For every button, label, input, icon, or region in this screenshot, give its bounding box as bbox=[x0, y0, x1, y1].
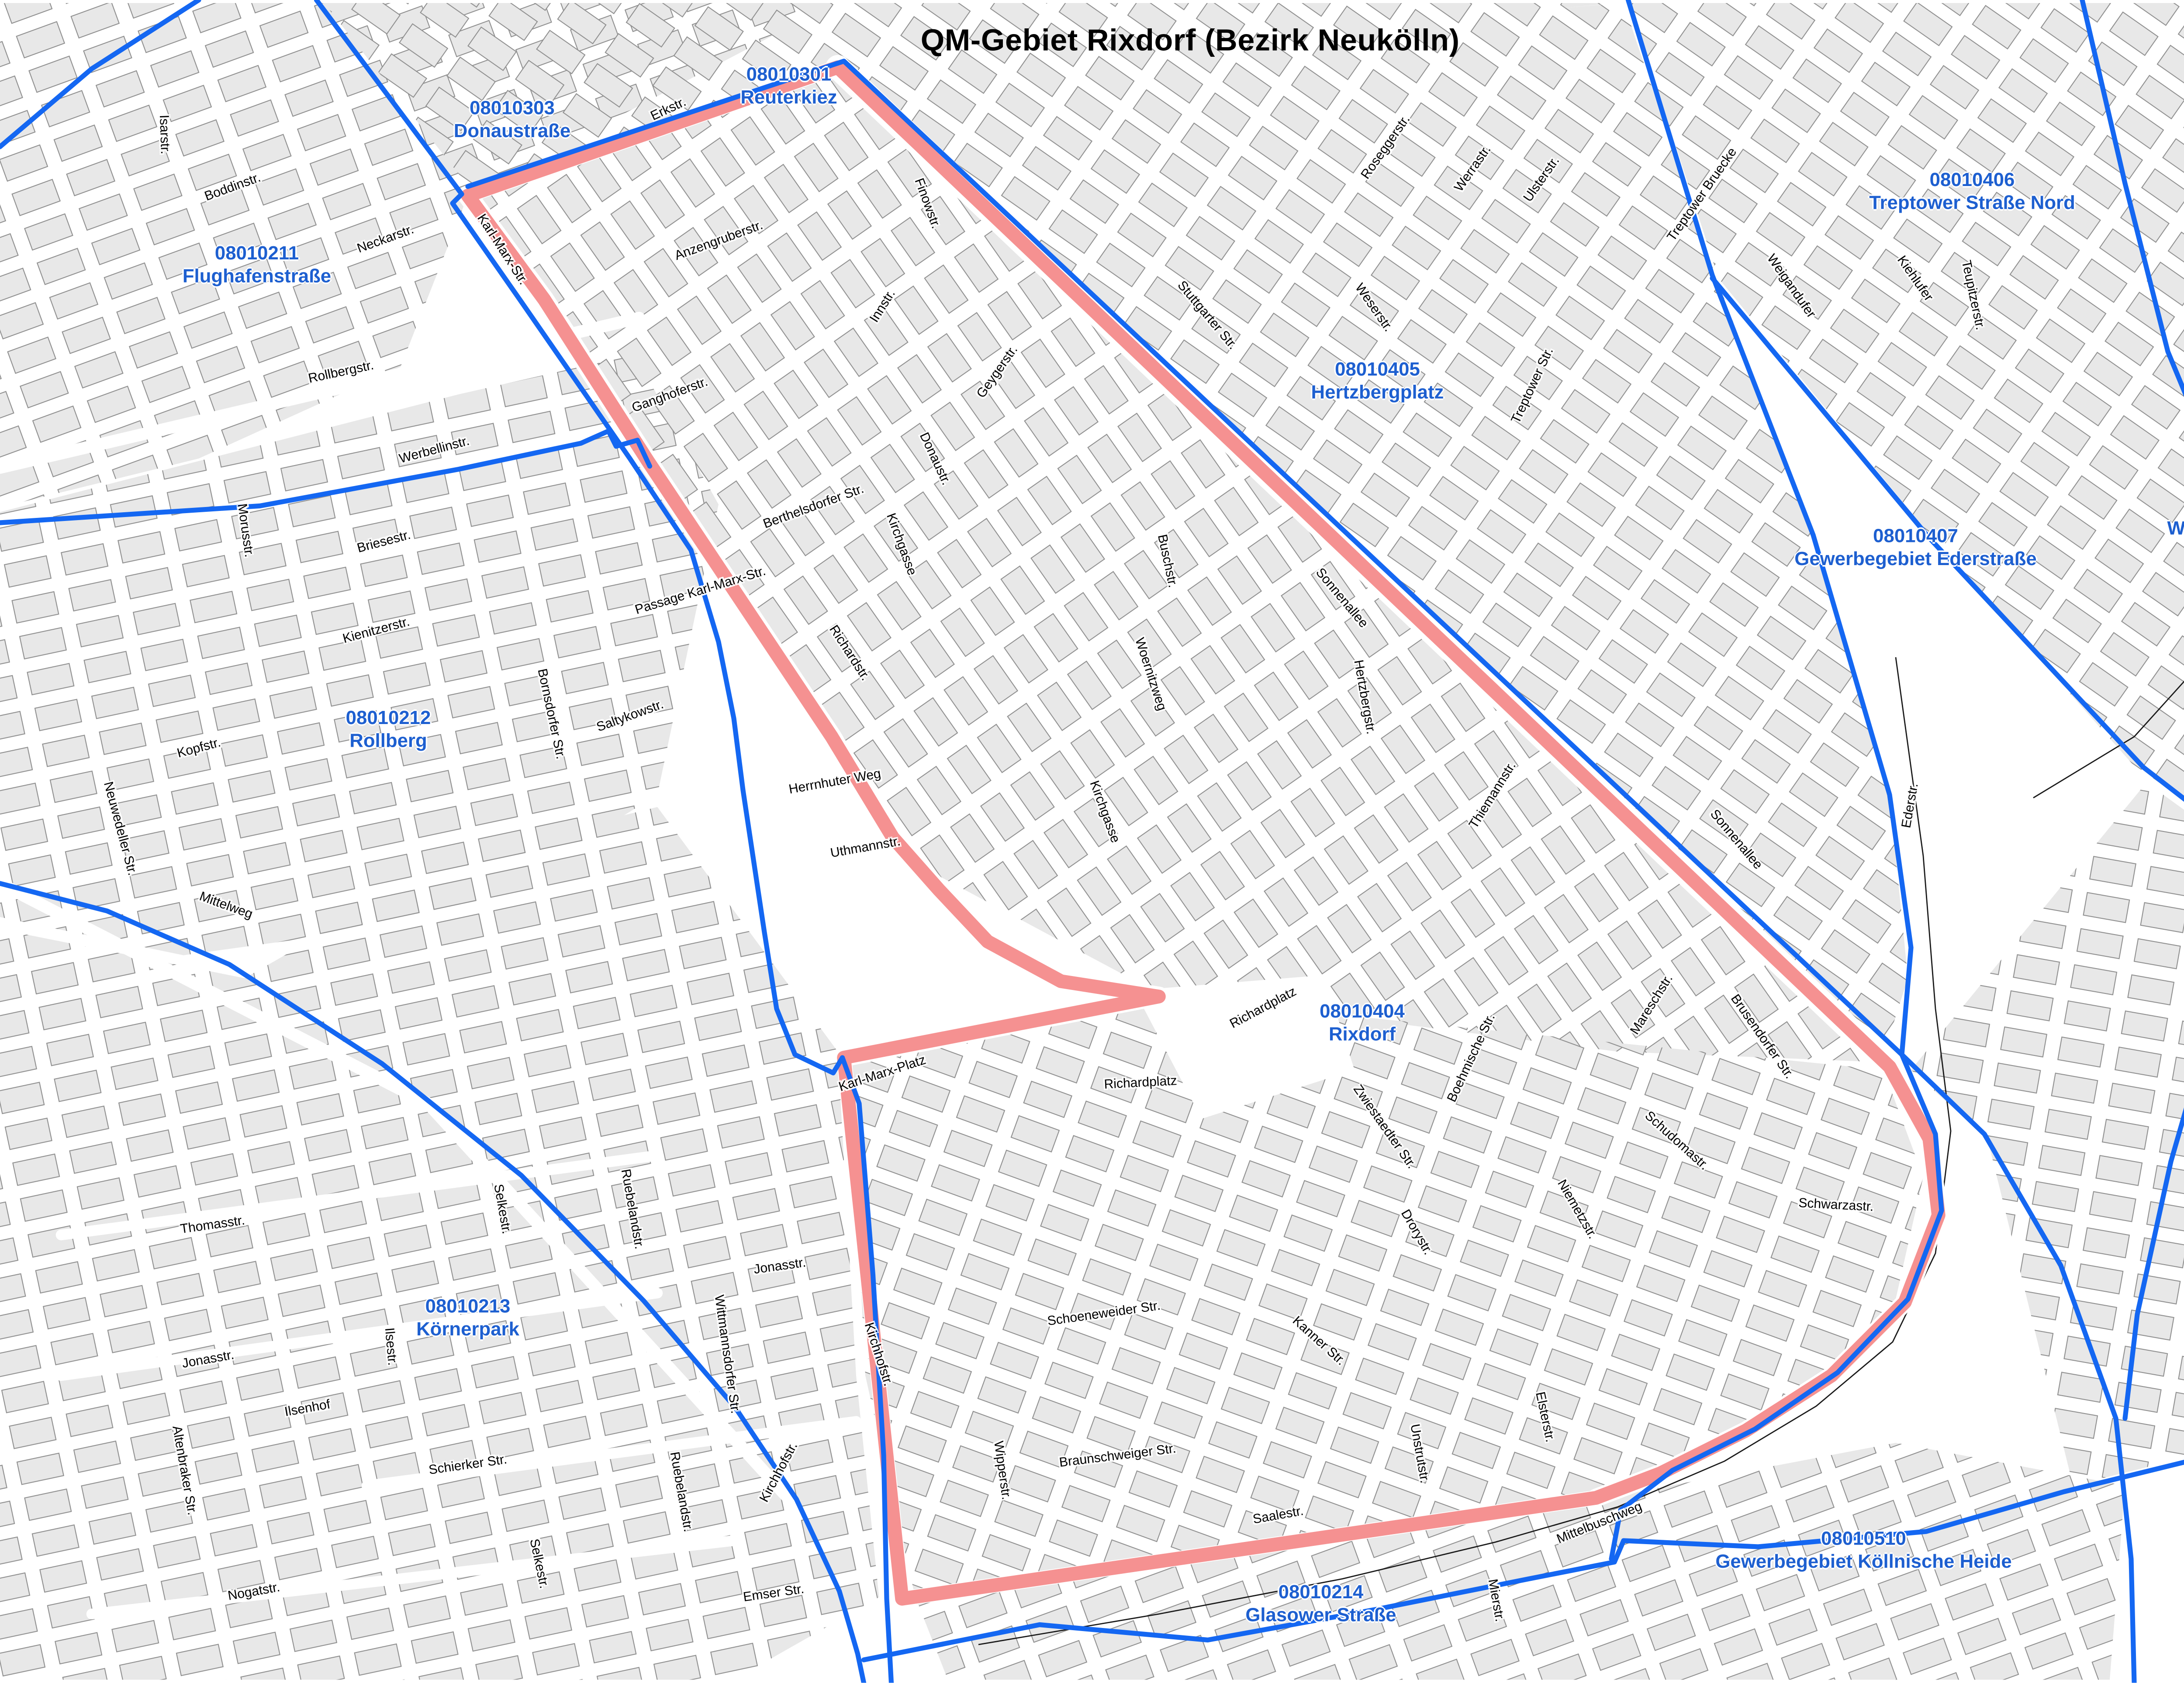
map-stage: 08010303Donaustraße08010301Reuterkiez080… bbox=[0, 0, 2184, 1683]
street-label: Roseggerstr. bbox=[1358, 112, 1413, 182]
street-label: Wipperstr. bbox=[991, 1440, 1015, 1501]
street-label: Elsterstr. bbox=[1533, 1390, 1559, 1444]
street-label: Mierstr. bbox=[1486, 1578, 1508, 1623]
street-label: Treptower Bruecke bbox=[1664, 145, 1740, 244]
district-code: 08010508 bbox=[2167, 495, 2184, 518]
street-label: Kirchgasse bbox=[884, 511, 920, 577]
street-label: Mittelbuschweg bbox=[1554, 1498, 1644, 1546]
street-label: Thiemannstr. bbox=[1465, 759, 1519, 831]
street-label: Woernitzweg bbox=[1132, 636, 1170, 713]
street-label: Saltykowstr. bbox=[594, 696, 666, 735]
district-label-08010404: 08010404Rixdorf bbox=[1320, 1001, 1405, 1048]
label-layer: 08010303Donaustraße08010301Reuterkiez080… bbox=[0, 0, 2184, 1683]
district-name: Treptower Straße Nord bbox=[1869, 193, 2075, 216]
street-label: Ganghoferstr. bbox=[629, 373, 709, 415]
street-label: Hertzbergstr. bbox=[1351, 659, 1379, 735]
street-label: Karl-Marx-Str. bbox=[474, 211, 531, 287]
street-label: Schierker Str. bbox=[428, 1451, 508, 1477]
street-label: Unstrutstr. bbox=[1407, 1423, 1433, 1484]
street-label: Kopfstr. bbox=[175, 734, 222, 760]
street-label: Anzengruberstr. bbox=[672, 217, 765, 263]
street-label: Richardstr. bbox=[826, 622, 874, 683]
street-label: Bornsdorfer Str. bbox=[535, 667, 569, 760]
district-label-08010213: 08010213Körnerpark bbox=[416, 1296, 519, 1342]
street-label: Kirchhofstr. bbox=[756, 1439, 801, 1504]
map-viewport: 08010303Donaustraße08010301Reuterkiez080… bbox=[0, 0, 2184, 1683]
street-label: Zwiestaedter Str. bbox=[1351, 1082, 1420, 1171]
street-label: Saalestr. bbox=[1251, 1503, 1304, 1527]
street-label: Weserstr. bbox=[1352, 280, 1396, 335]
district-label-08010211: 08010211Flughafenstraße bbox=[183, 243, 331, 290]
district-code: 08010301 bbox=[740, 64, 837, 87]
district-code: 08010214 bbox=[1245, 1582, 1396, 1605]
district-code: 08010213 bbox=[416, 1296, 519, 1319]
street-label: Selkestr. bbox=[527, 1537, 552, 1590]
street-label: Treptower Str. bbox=[1507, 345, 1556, 426]
street-label: Ilsenhof bbox=[283, 1396, 332, 1419]
street-label: Donaustr. bbox=[917, 430, 954, 487]
district-code: 08010510 bbox=[1715, 1528, 2011, 1551]
street-label: Erkstr. bbox=[648, 94, 688, 124]
district-code: 08010212 bbox=[346, 707, 431, 731]
street-label: Selkestr. bbox=[491, 1183, 515, 1235]
street-label: Isarstr. bbox=[157, 114, 173, 154]
district-label-08010510: 08010510Gewerbegebiet Köllnische Heide bbox=[1715, 1528, 2011, 1575]
street-label: Schwarzastr. bbox=[1798, 1195, 1874, 1214]
district-name: Glasower Straße bbox=[1245, 1605, 1396, 1628]
street-label: Sonnenallee bbox=[1707, 806, 1766, 872]
district-label-08010301: 08010301Reuterkiez bbox=[740, 64, 837, 110]
street-label: Karl-Marx-Platz bbox=[837, 1052, 928, 1094]
district-label-08010508: 08010508Weiße Siedlung bbox=[2167, 495, 2184, 541]
street-label: Briesestr. bbox=[355, 527, 412, 555]
street-label: Uthmannstr. bbox=[829, 833, 902, 861]
street-label: Ilsestr. bbox=[382, 1327, 401, 1366]
street-label: Mittelweg bbox=[197, 888, 255, 921]
street-label: Neckarstr. bbox=[355, 221, 415, 255]
street-label: Weigandufer bbox=[1764, 251, 1819, 321]
street-label: Kanner Str. bbox=[1290, 1313, 1349, 1368]
street-label: Finowstr. bbox=[912, 176, 944, 231]
street-label: Schudomastr. bbox=[1642, 1107, 1712, 1173]
district-name: Donaustraße bbox=[454, 121, 570, 144]
district-label-08010212: 08010212Rollberg bbox=[346, 707, 431, 754]
street-label: Werrastr. bbox=[1451, 142, 1493, 194]
district-name: Hertzbergplatz bbox=[1311, 382, 1444, 405]
district-name: Weiße Siedlung bbox=[2167, 518, 2184, 541]
district-label-08010407: 08010407Gewerbegebiet Ederstraße bbox=[1794, 525, 2036, 572]
street-label: Rollbergstr. bbox=[307, 357, 375, 386]
street-label: Boehmische Str. bbox=[1444, 1011, 1498, 1104]
street-label: Berthelsdorfer Str. bbox=[761, 481, 866, 531]
street-label: Schoeneweider Str. bbox=[1046, 1297, 1161, 1328]
street-label: Wittmannsdorfer Str. bbox=[712, 1294, 744, 1414]
street-label: Boddinstr. bbox=[202, 169, 263, 204]
street-label: Nogatstr. bbox=[227, 1579, 281, 1603]
street-label: Altenbraker Str. bbox=[169, 1424, 200, 1516]
street-label: Werbellinstr. bbox=[397, 433, 471, 466]
street-label: Herrnhuter Weg bbox=[788, 766, 882, 797]
district-code: 08010407 bbox=[1794, 525, 2036, 548]
street-label: Braunschweiger Str. bbox=[1058, 1440, 1177, 1470]
street-label: Geygerstr. bbox=[973, 342, 1020, 401]
street-label: Brusendorfer Str. bbox=[1728, 991, 1797, 1081]
district-name: Rixdorf bbox=[1320, 1024, 1405, 1047]
street-label: Sonnenallee bbox=[1313, 565, 1372, 631]
street-label: Kiehlufer bbox=[1894, 252, 1937, 303]
street-label: Kirchgasse bbox=[1087, 779, 1124, 845]
district-label-08010406: 08010406Treptower Straße Nord bbox=[1869, 169, 2075, 216]
street-label: Ruebelandstr. bbox=[619, 1168, 648, 1250]
street-label: Stuttgarter Str. bbox=[1175, 277, 1241, 352]
street-label: Thomasstr. bbox=[179, 1212, 245, 1236]
street-label: Mareschstr. bbox=[1627, 971, 1676, 1037]
district-name: Körnerpark bbox=[416, 1319, 519, 1342]
district-name: Reuterkiez bbox=[740, 87, 837, 110]
district-name: Flughafenstraße bbox=[183, 266, 331, 289]
street-label: Ruebelandstr. bbox=[667, 1451, 697, 1533]
district-name: Gewerbegebiet Ederstraße bbox=[1794, 549, 2036, 572]
street-label: Ederstr. bbox=[1898, 782, 1921, 829]
street-label: Kienitzerstr. bbox=[341, 614, 411, 646]
street-label: Passage Karl-Marx-Str. bbox=[633, 563, 767, 617]
street-label: Drorystr. bbox=[1398, 1207, 1436, 1257]
street-label: Richardplatz bbox=[1104, 1073, 1178, 1092]
street-label: Kirchhofstr. bbox=[862, 1321, 897, 1388]
map-title: QM-Gebiet Rixdorf (Bezirk Neukölln) bbox=[0, 24, 2184, 60]
street-label: Neuwedeller Str. bbox=[101, 780, 141, 877]
street-label: Jonasstr. bbox=[181, 1347, 235, 1371]
street-label: Teupitzerstr. bbox=[1959, 259, 1989, 331]
street-label: Ulsterstr. bbox=[1520, 153, 1562, 204]
district-code: 08010406 bbox=[1869, 169, 2075, 193]
street-label: Innstr. bbox=[866, 286, 898, 325]
street-label: Emser Str. bbox=[742, 1581, 805, 1604]
district-code: 08010211 bbox=[183, 243, 331, 266]
district-label-08010303: 08010303Donaustraße bbox=[454, 97, 570, 144]
district-code: 08010405 bbox=[1311, 359, 1444, 382]
district-name: Rollberg bbox=[346, 731, 431, 754]
district-name: Gewerbegebiet Köllnische Heide bbox=[1715, 1552, 2011, 1575]
street-label: Buschstr. bbox=[1155, 533, 1181, 589]
district-code: 08010303 bbox=[454, 97, 570, 121]
district-label-08010214: 08010214Glasower Straße bbox=[1245, 1582, 1396, 1628]
street-label: Morusstr. bbox=[235, 503, 258, 558]
district-label-08010405: 08010405Hertzbergplatz bbox=[1311, 359, 1444, 406]
street-label: Niemetzstr. bbox=[1555, 1177, 1601, 1242]
district-code: 08010404 bbox=[1320, 1001, 1405, 1024]
street-label: Jonasstr. bbox=[753, 1254, 807, 1276]
street-label: Richardplatz bbox=[1227, 983, 1299, 1031]
